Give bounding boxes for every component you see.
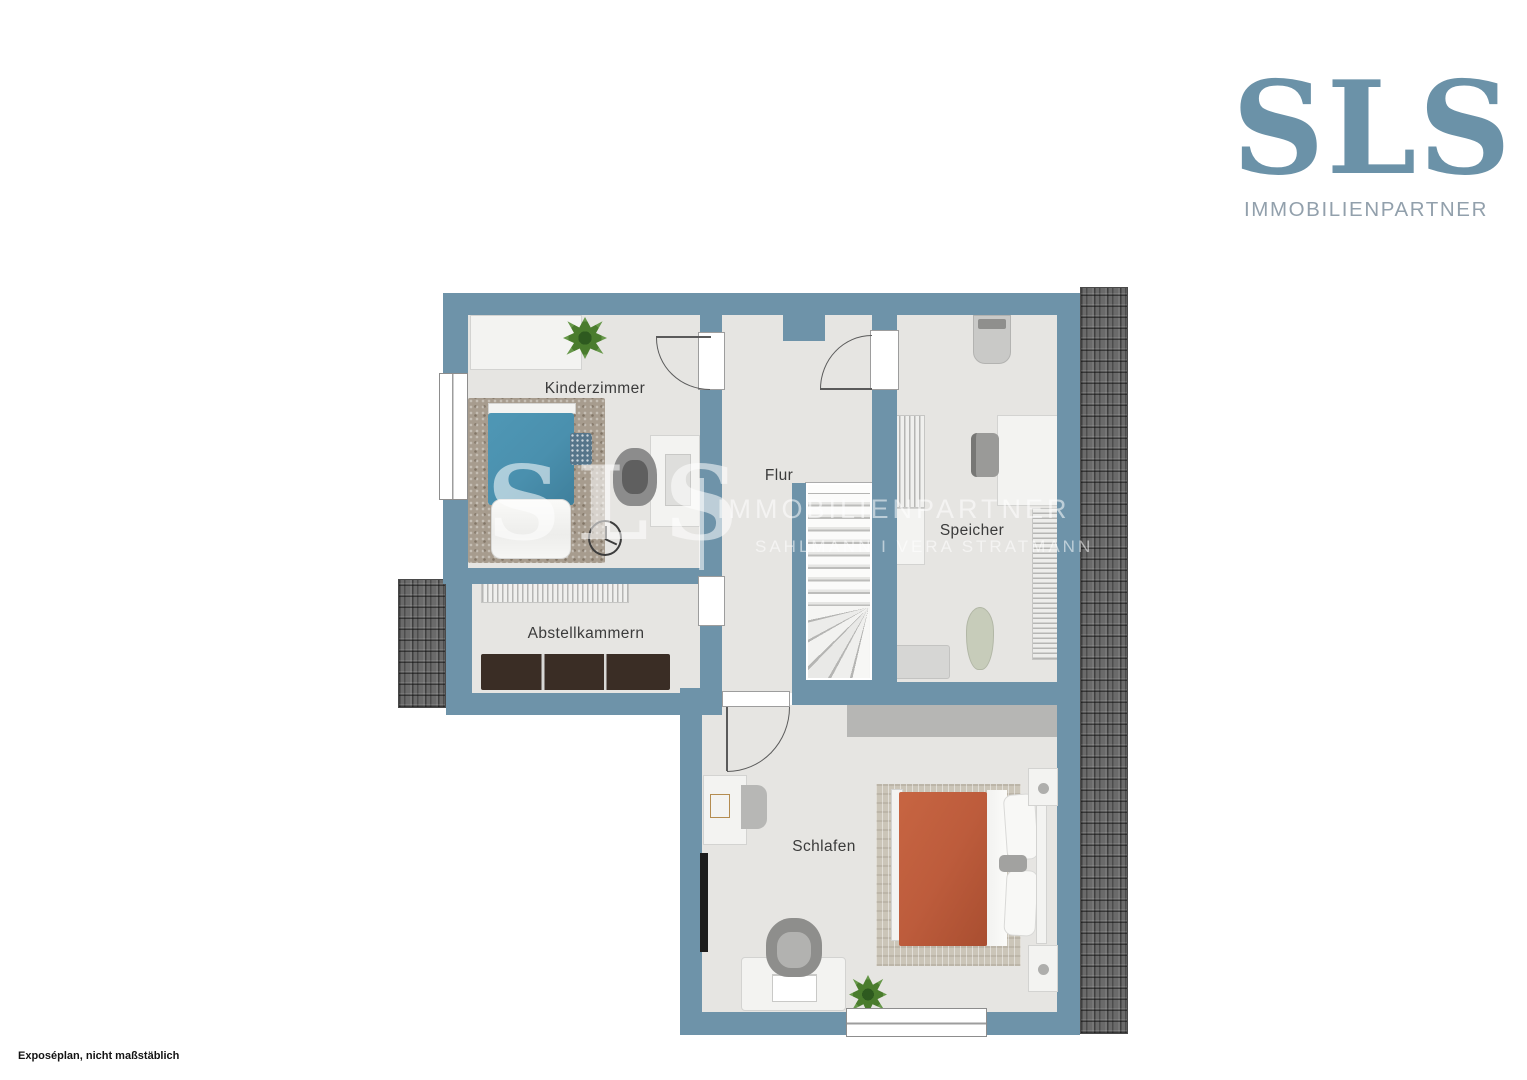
brand-logo-subtitle: IMMOBILIENPARTNER: [1232, 198, 1500, 222]
wall-stairs-bottom: [792, 680, 897, 705]
wall-flur-notch: [783, 315, 825, 341]
wall-stairwell-left: [792, 483, 806, 705]
roof-tiles-right: [1080, 287, 1128, 1034]
room-label-speicher: Speicher: [940, 522, 1004, 540]
kinderzimmer-dresser: [470, 315, 582, 370]
wall-right-outer: [1057, 293, 1080, 1035]
schlafen-vanity-detail: [710, 794, 730, 818]
kids-bed-blanket: [488, 413, 574, 505]
stair-winder-steps: [808, 606, 870, 678]
brand-logo: SLS IMMOBILIENPARTNER: [1232, 62, 1500, 222]
room-label-flur: Flur: [765, 467, 793, 485]
stair-landing-edge: [808, 485, 870, 494]
nightstand-bottom-lamp: [1038, 964, 1049, 975]
door-sill-schlafen: [722, 691, 790, 707]
door-opening-speicher: [870, 330, 899, 390]
speicher-chair: [971, 433, 999, 477]
door-opening-abstellkammern: [698, 576, 725, 626]
floor-plan: Kinderzimmer Flur Speicher Abstellkammer…: [395, 285, 1135, 1040]
nightstand-top-lamp: [1038, 783, 1049, 794]
master-bed-cushion: [999, 855, 1027, 872]
schlafen-vanity-chair: [741, 785, 767, 829]
ironing-board: [966, 607, 994, 670]
wall-top: [443, 293, 1080, 315]
kinderzimmer-desk: [650, 435, 700, 527]
master-bed-pillow-bottom: [1003, 869, 1038, 937]
footnote: Exposéplan, nicht maßstäblich: [18, 1050, 179, 1062]
stair-straight-steps: [808, 494, 870, 606]
nightstand-bottom: [1028, 945, 1058, 992]
speicher-desk: [997, 415, 1058, 506]
wall-kinderzimmer-bottom: [443, 568, 722, 584]
roof-tiles-left: [398, 579, 446, 708]
kinderzimmer-chair: [613, 448, 657, 506]
kids-bed-duvet: [491, 499, 571, 559]
master-bed-headboard: [1036, 792, 1047, 944]
abstellkammern-sideboard: [481, 654, 670, 690]
schlafen-office-chair: [766, 918, 822, 977]
page: SLS IMMOBILIENPARTNER: [0, 0, 1527, 1080]
washing-machine: [973, 315, 1011, 364]
clock-hand-hour: [605, 538, 618, 545]
master-bed-duvet: [899, 792, 987, 946]
schlafen-desk-drawers: [772, 974, 817, 1002]
room-label-schlafen: Schlafen: [792, 838, 856, 856]
kinderzimmer-desk-top: [665, 454, 691, 506]
clock-icon: [588, 520, 622, 556]
staircase: [806, 483, 872, 680]
nightstand-top: [1028, 768, 1058, 806]
speicher-radiator-shelf: [1032, 508, 1058, 660]
kinderzimmer-chair-seat: [622, 460, 648, 494]
brand-logo-text: SLS: [1232, 62, 1500, 196]
room-label-abstellkammern: Abstellkammern: [528, 625, 645, 643]
tv-board: [700, 853, 708, 952]
window-kinderzimmer: [439, 373, 468, 500]
wall-schlafen-left: [680, 688, 702, 1035]
window-schlafen: [846, 1008, 987, 1037]
kids-bed-cushion: [570, 433, 592, 465]
wall-speicher-bottom: [872, 682, 1080, 705]
washing-machine-panel: [978, 319, 1006, 329]
schlafen-office-chair-seat: [777, 932, 811, 968]
room-label-kinderzimmer: Kinderzimmer: [545, 380, 645, 398]
